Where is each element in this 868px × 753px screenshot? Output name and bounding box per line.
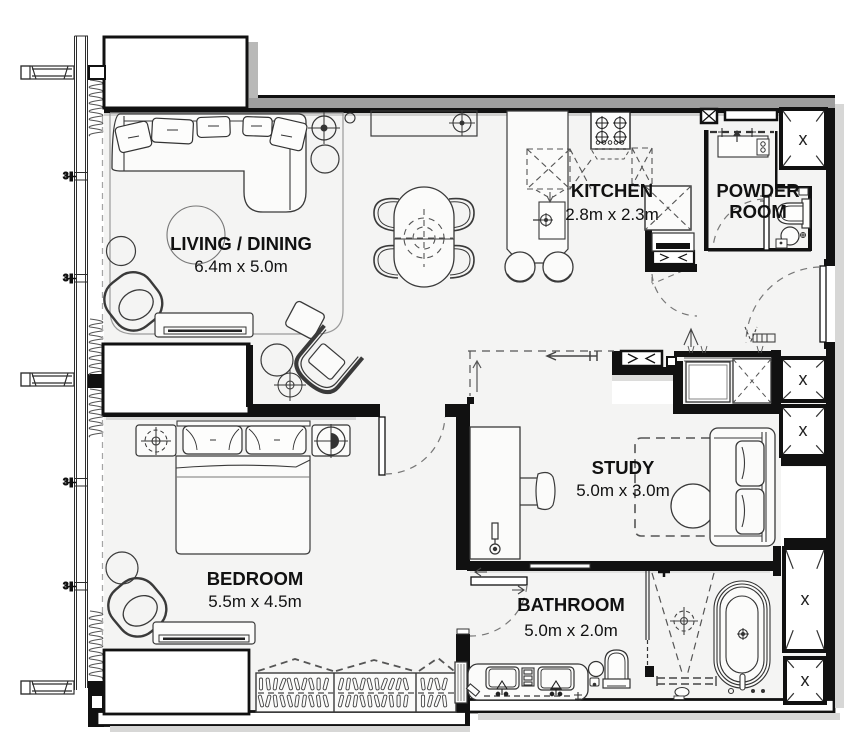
svg-text:2.8m x 2.3m: 2.8m x 2.3m <box>565 205 659 224</box>
svg-text:5.0m x 2.0m: 5.0m x 2.0m <box>524 621 618 640</box>
svg-text:ROOM: ROOM <box>729 201 787 222</box>
svg-text:x: x <box>801 670 810 690</box>
svg-text:5.0m x 3.0m: 5.0m x 3.0m <box>576 481 670 500</box>
svg-text:BATHROOM: BATHROOM <box>517 594 625 615</box>
svg-text:KITCHEN: KITCHEN <box>571 180 653 201</box>
svg-text:BEDROOM: BEDROOM <box>207 568 304 589</box>
svg-text:LIVING / DINING: LIVING / DINING <box>170 233 312 254</box>
svg-text:6.4m x 5.0m: 6.4m x 5.0m <box>194 257 288 276</box>
svg-text:x: x <box>799 369 808 389</box>
svg-text:5.5m x 4.5m: 5.5m x 4.5m <box>208 592 302 611</box>
svg-text:x: x <box>799 129 808 149</box>
svg-text:x: x <box>801 589 810 609</box>
svg-text:x: x <box>799 420 808 440</box>
svg-text:STUDY: STUDY <box>592 457 655 478</box>
svg-text:POWDER: POWDER <box>716 180 799 201</box>
